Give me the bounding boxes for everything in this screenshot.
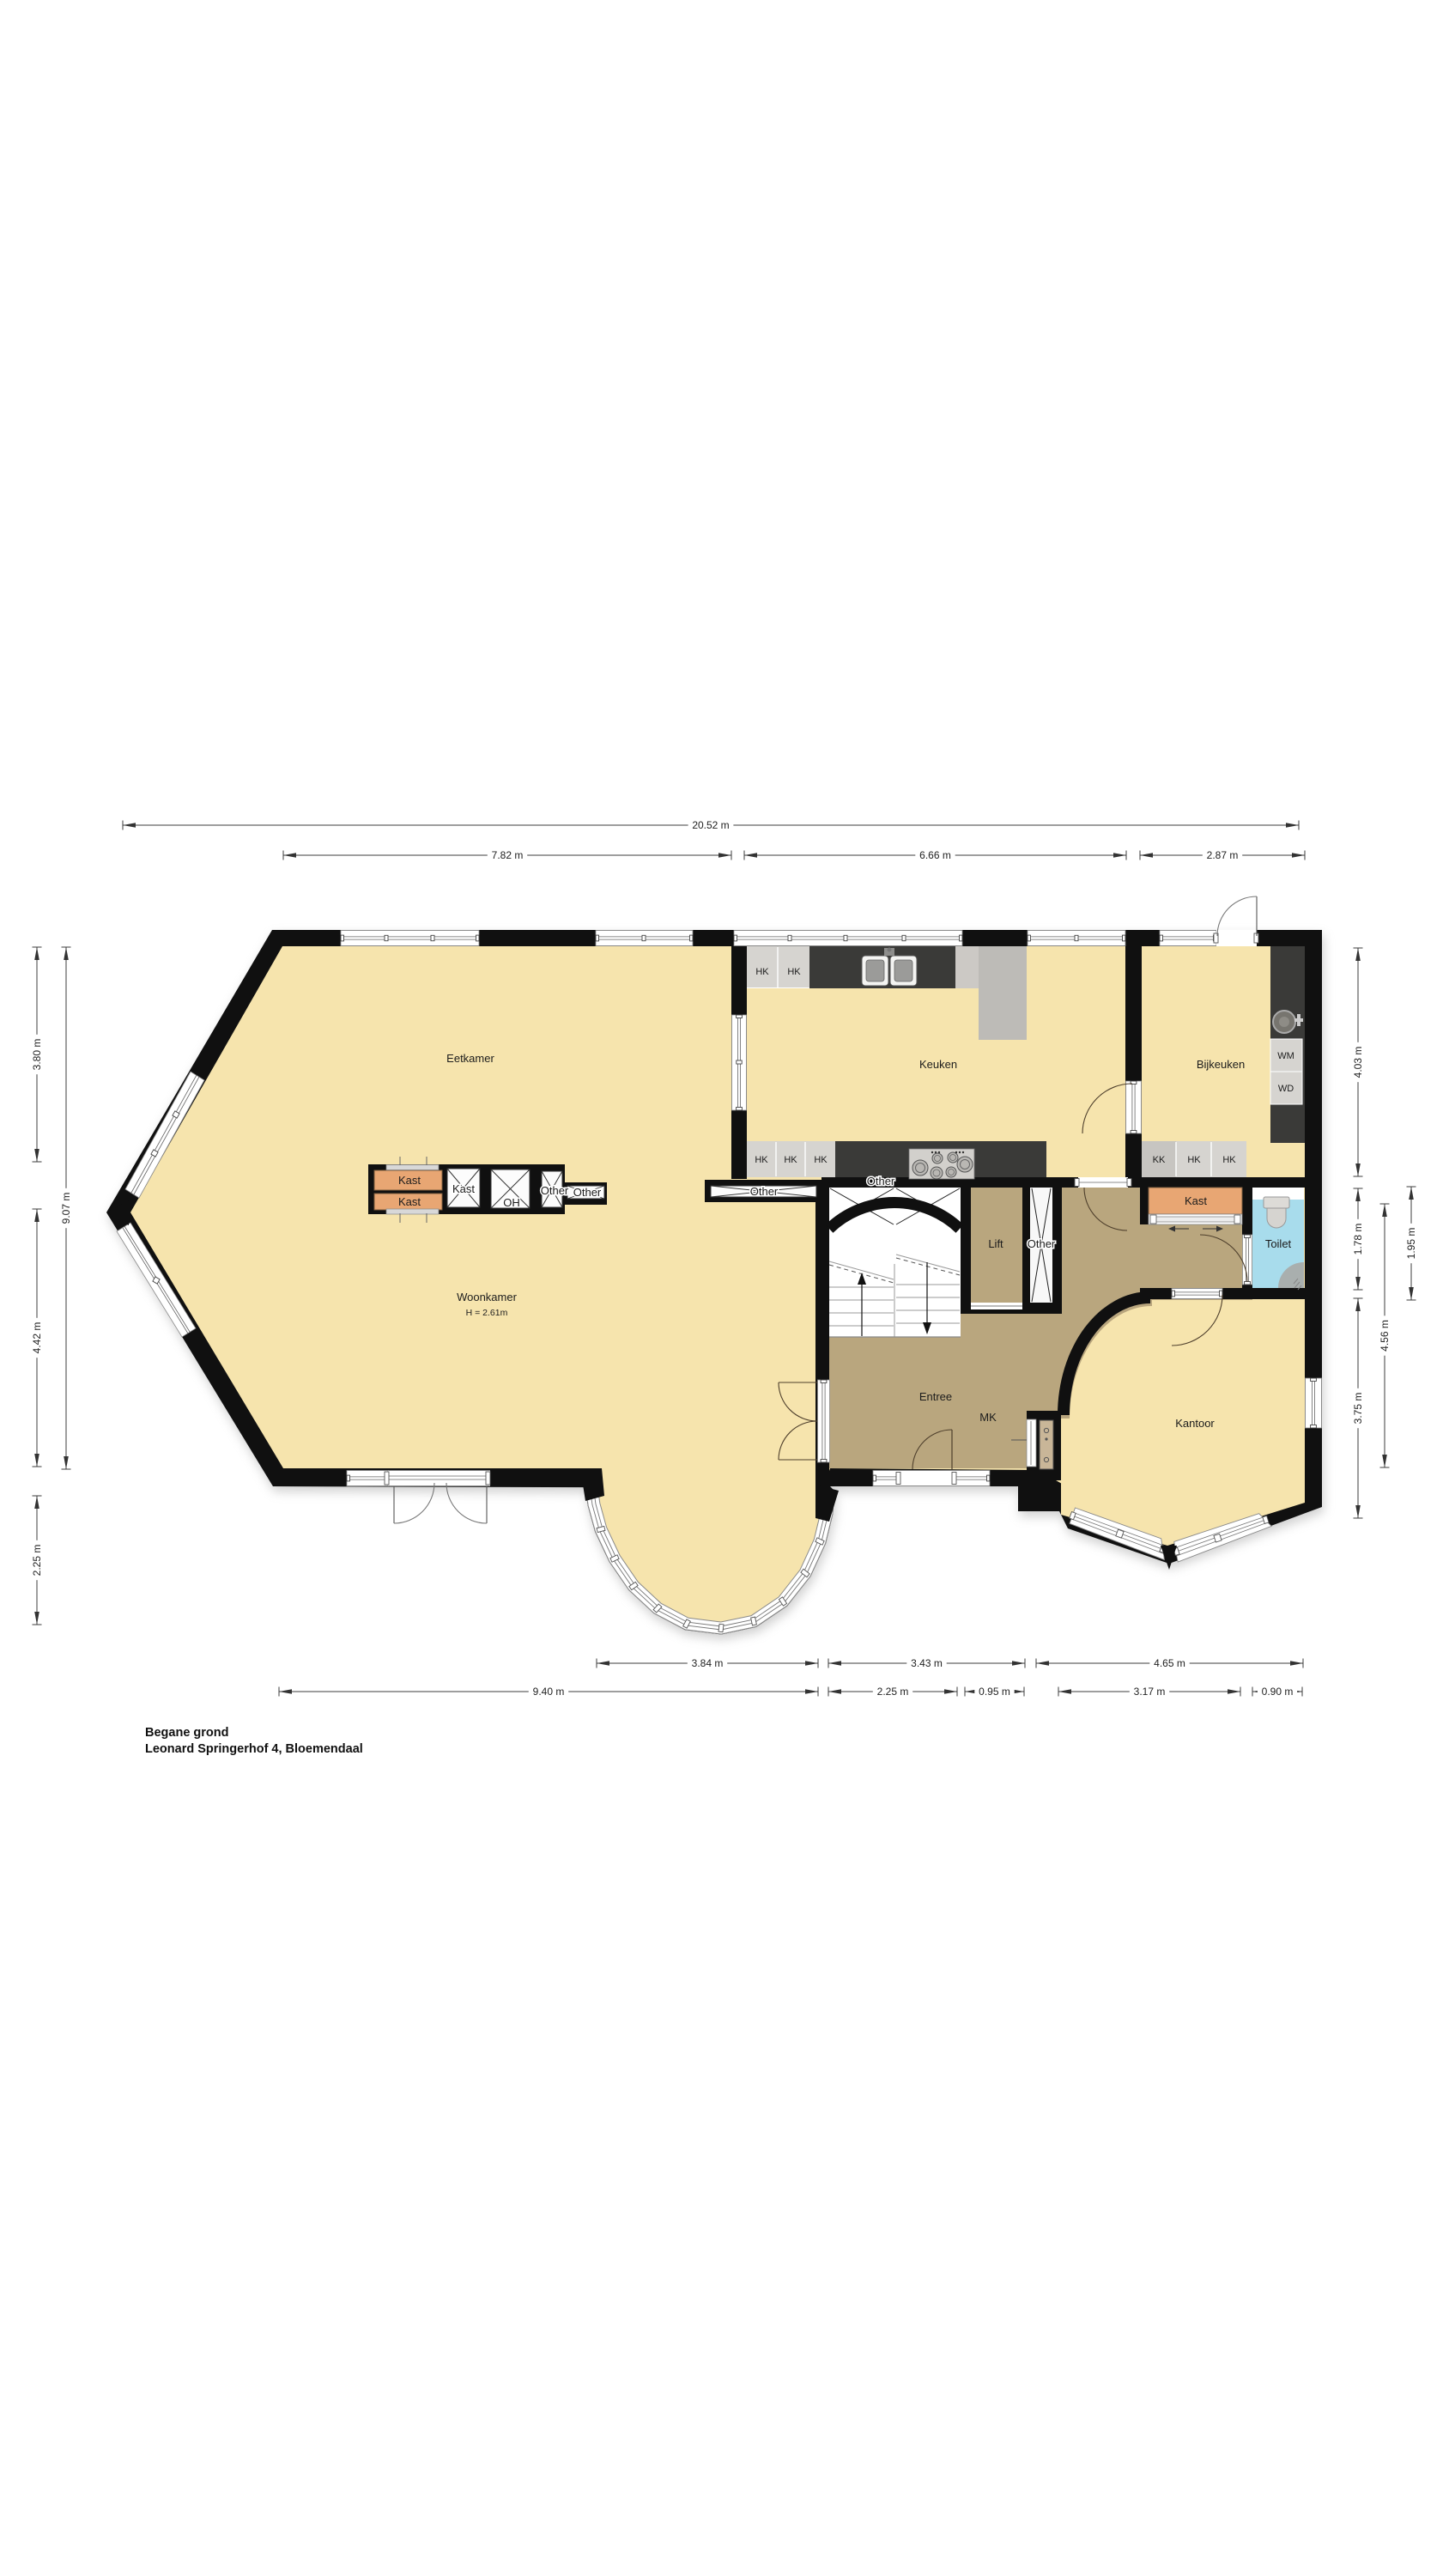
svg-text:4.42 m: 4.42 m [31, 1322, 43, 1354]
svg-text:Keuken: Keuken [919, 1058, 957, 1071]
svg-text:HK: HK [755, 967, 769, 977]
svg-text:KK: KK [1153, 1155, 1166, 1165]
svg-text:2.87 m: 2.87 m [1207, 849, 1239, 861]
svg-text:0.90 m: 0.90 m [1262, 1686, 1294, 1698]
svg-text:3.84 m: 3.84 m [692, 1657, 724, 1669]
svg-text:4.56 m: 4.56 m [1379, 1320, 1391, 1352]
svg-text:Other: Other [541, 1184, 569, 1197]
svg-text:Other: Other [1028, 1237, 1056, 1250]
svg-text:MK: MK [979, 1411, 997, 1424]
svg-text:3.75 m: 3.75 m [1352, 1393, 1364, 1425]
svg-text:Leonard Springerhof 4, Bloemen: Leonard Springerhof 4, Bloemendaal [145, 1742, 363, 1756]
svg-text:Begane grond: Begane grond [145, 1726, 228, 1740]
svg-text:H = 2.61m: H = 2.61m [466, 1308, 508, 1318]
svg-text:4.65 m: 4.65 m [1154, 1657, 1185, 1669]
svg-text:HK: HK [787, 967, 801, 977]
svg-text:Woonkamer: Woonkamer [457, 1291, 518, 1303]
svg-text:Kast: Kast [1185, 1194, 1207, 1207]
svg-text:OH: OH [503, 1196, 520, 1209]
svg-text:9.40 m: 9.40 m [533, 1686, 565, 1698]
svg-text:3.17 m: 3.17 m [1134, 1686, 1166, 1698]
svg-text:Other: Other [750, 1185, 779, 1198]
svg-text:1.78 m: 1.78 m [1352, 1224, 1364, 1255]
svg-text:HK: HK [784, 1155, 797, 1165]
svg-text:4.03 m: 4.03 m [1352, 1047, 1364, 1078]
svg-text:Kast: Kast [398, 1195, 421, 1208]
svg-text:Kast: Kast [452, 1182, 475, 1195]
svg-text:Bijkeuken: Bijkeuken [1197, 1058, 1245, 1071]
svg-text:1.95 m: 1.95 m [1405, 1228, 1417, 1260]
svg-text:2.25 m: 2.25 m [31, 1545, 43, 1577]
svg-text:WD: WD [1278, 1084, 1294, 1094]
svg-text:WM: WM [1277, 1051, 1294, 1061]
svg-text:HK: HK [814, 1155, 828, 1165]
svg-text:9.07 m: 9.07 m [60, 1193, 72, 1224]
svg-text:Entree: Entree [919, 1390, 952, 1403]
svg-text:Other: Other [573, 1186, 602, 1199]
svg-text:HK: HK [755, 1155, 768, 1165]
svg-text:Kast: Kast [398, 1174, 421, 1187]
svg-text:Kantoor: Kantoor [1175, 1417, 1215, 1430]
svg-text:Eetkamer: Eetkamer [446, 1052, 494, 1065]
svg-text:Lift: Lift [988, 1237, 1003, 1250]
svg-text:0.95 m: 0.95 m [979, 1686, 1010, 1698]
svg-text:3.43 m: 3.43 m [911, 1657, 943, 1669]
svg-text:HK: HK [1187, 1155, 1201, 1165]
svg-text:20.52 m: 20.52 m [692, 819, 729, 831]
svg-text:2.25 m: 2.25 m [877, 1686, 909, 1698]
svg-text:6.66 m: 6.66 m [919, 849, 951, 861]
svg-text:Other: Other [867, 1175, 895, 1188]
svg-text:7.82 m: 7.82 m [492, 849, 524, 861]
svg-text:Toilet: Toilet [1265, 1237, 1292, 1250]
svg-text:3.80 m: 3.80 m [31, 1039, 43, 1071]
svg-text:HK: HK [1222, 1155, 1236, 1165]
